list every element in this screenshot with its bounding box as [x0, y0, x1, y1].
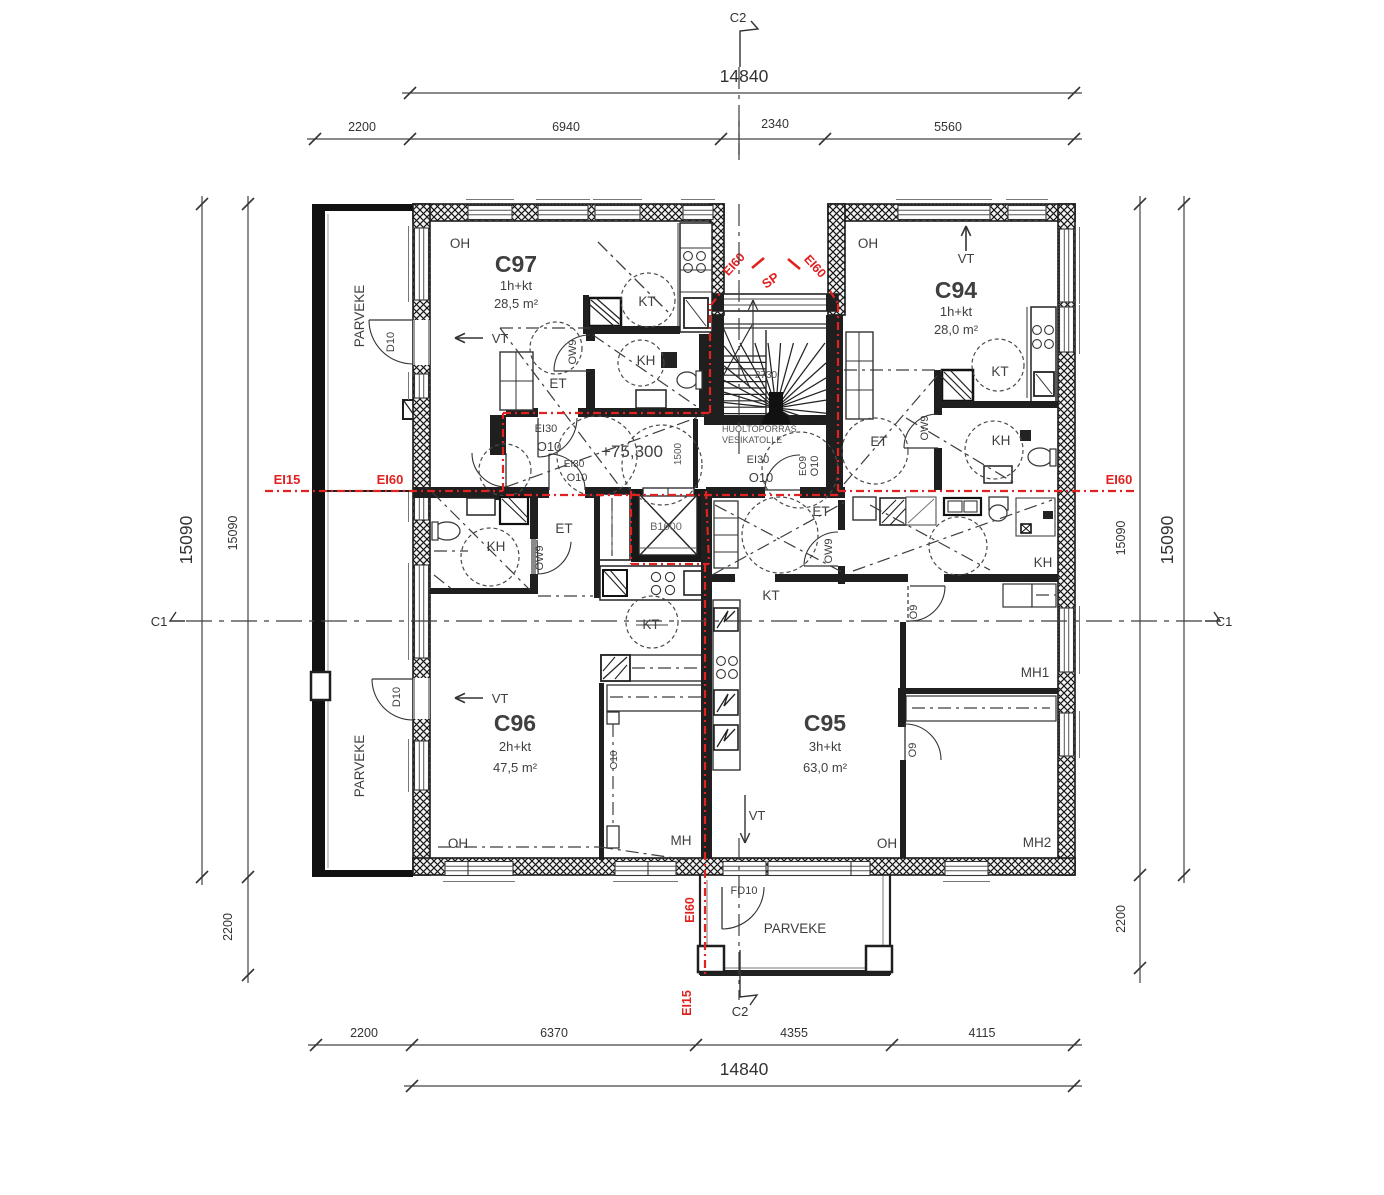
svg-text:2200: 2200	[348, 120, 376, 134]
svg-text:6940: 6940	[552, 120, 580, 134]
svg-text:EI15: EI15	[274, 472, 301, 487]
svg-text:KH: KH	[1034, 555, 1053, 570]
svg-text:KT: KT	[762, 588, 779, 603]
svg-text:OH: OH	[858, 236, 878, 251]
svg-text:VT: VT	[958, 251, 975, 266]
svg-text:VT: VT	[492, 331, 509, 346]
svg-text:MH: MH	[671, 833, 692, 848]
svg-text:KT: KT	[991, 364, 1008, 379]
svg-text:2200: 2200	[221, 913, 235, 941]
svg-text:PARVEKE: PARVEKE	[352, 285, 367, 348]
svg-text:EO9: EO9	[798, 456, 809, 476]
svg-text:OH: OH	[450, 236, 470, 251]
svg-text:EI60: EI60	[1106, 472, 1133, 487]
svg-text:15090: 15090	[176, 515, 196, 564]
svg-text:O10: O10	[567, 472, 588, 484]
svg-text:15090: 15090	[1114, 521, 1128, 556]
svg-text:KH: KH	[487, 539, 506, 554]
svg-text:PARVEKE: PARVEKE	[352, 735, 367, 798]
svg-text:OW9: OW9	[823, 538, 835, 563]
svg-text:PARVEKE: PARVEKE	[764, 921, 827, 936]
svg-text:HUOLTOPORRAS: HUOLTOPORRAS	[722, 424, 797, 434]
svg-text:MH2: MH2	[1023, 835, 1052, 850]
svg-text:B1600: B1600	[650, 521, 682, 533]
svg-text:+75,300: +75,300	[601, 442, 663, 461]
svg-text:C1: C1	[151, 614, 168, 629]
svg-text:2200: 2200	[1114, 905, 1128, 933]
svg-text:D10: D10	[391, 687, 403, 707]
svg-text:2340: 2340	[761, 117, 789, 131]
svg-text:C2: C2	[732, 1004, 749, 1019]
svg-text:C2: C2	[730, 10, 747, 25]
svg-text:C95: C95	[804, 710, 846, 736]
svg-text:2h+kt: 2h+kt	[499, 739, 532, 754]
svg-text:5560: 5560	[934, 120, 962, 134]
svg-text:D10: D10	[385, 332, 397, 352]
svg-text:28,5 m²: 28,5 m²	[494, 296, 539, 311]
svg-text:O9: O9	[908, 605, 920, 620]
svg-text:6370: 6370	[540, 1026, 568, 1040]
svg-text:4355: 4355	[780, 1026, 808, 1040]
svg-text:KH: KH	[992, 433, 1011, 448]
svg-text:47,5 m²: 47,5 m²	[493, 760, 538, 775]
svg-text:VT: VT	[492, 691, 509, 706]
svg-text:EI15: EI15	[680, 990, 694, 1016]
svg-text:63,0 m²: 63,0 m²	[803, 760, 848, 775]
svg-text:EI30: EI30	[535, 423, 558, 435]
svg-text:OW9: OW9	[919, 415, 931, 440]
svg-text:EI30: EI30	[747, 454, 770, 466]
svg-text:3h+kt: 3h+kt	[809, 739, 842, 754]
svg-text:VT: VT	[749, 808, 766, 823]
svg-text:2730: 2730	[755, 370, 778, 381]
svg-text:15090: 15090	[226, 516, 240, 551]
svg-text:ET: ET	[555, 521, 572, 536]
svg-text:1h+kt: 1h+kt	[940, 304, 973, 319]
svg-text:C96: C96	[494, 710, 536, 736]
svg-text:C97: C97	[495, 251, 537, 277]
svg-text:OH: OH	[877, 836, 897, 851]
svg-text:EI60: EI60	[683, 897, 697, 923]
svg-text:2200: 2200	[350, 1026, 378, 1040]
svg-text:14840: 14840	[720, 1059, 769, 1079]
svg-text:OH: OH	[448, 836, 468, 851]
svg-text:EI60: EI60	[377, 472, 404, 487]
svg-text:14840: 14840	[720, 66, 769, 86]
svg-text:1h+kt: 1h+kt	[500, 278, 533, 293]
svg-text:O10: O10	[609, 750, 620, 769]
svg-text:28,0 m²: 28,0 m²	[934, 322, 979, 337]
svg-text:O9: O9	[907, 743, 919, 758]
svg-text:ET: ET	[549, 376, 566, 391]
svg-text:OW9: OW9	[534, 545, 546, 570]
svg-text:O10: O10	[749, 470, 774, 485]
svg-text:KH: KH	[637, 353, 656, 368]
svg-text:C94: C94	[935, 277, 977, 303]
svg-text:MH1: MH1	[1021, 665, 1050, 680]
svg-text:FD10: FD10	[731, 885, 758, 897]
svg-text:15090: 15090	[1157, 515, 1177, 564]
svg-text:1500: 1500	[673, 442, 684, 465]
svg-text:KT: KT	[638, 294, 655, 309]
svg-text:O10: O10	[809, 456, 821, 477]
svg-text:OW9: OW9	[567, 339, 579, 364]
svg-text:4115: 4115	[969, 1026, 996, 1040]
